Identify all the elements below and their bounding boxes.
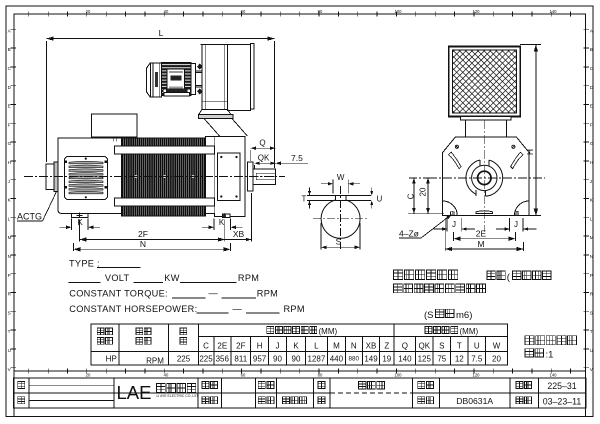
svg-text:120: 120 — [473, 373, 481, 378]
svg-text:K: K — [293, 342, 299, 351]
svg-text:2E: 2E — [476, 229, 487, 239]
svg-text:LAE: LAE — [117, 382, 152, 403]
svg-text:DB0631A: DB0631A — [456, 396, 493, 406]
svg-text:75: 75 — [437, 354, 446, 363]
svg-text:(MM): (MM) — [460, 327, 479, 336]
svg-text:60: 60 — [241, 373, 246, 378]
svg-text:140: 140 — [398, 354, 412, 363]
svg-text:7.5: 7.5 — [471, 354, 483, 363]
svg-text:J: J — [8, 179, 10, 184]
svg-text:CONSTANT HORSEPOWER:: CONSTANT HORSEPOWER: — [69, 304, 197, 314]
svg-text:90: 90 — [292, 354, 301, 363]
svg-text:M: M — [333, 342, 340, 351]
svg-text:7.5: 7.5 — [291, 153, 303, 163]
svg-text:L: L — [8, 216, 11, 221]
svg-text:P: P — [590, 273, 593, 278]
svg-text:2F: 2F — [236, 342, 245, 351]
svg-text:03–23–11: 03–23–11 — [543, 396, 582, 406]
svg-text:(MM): (MM) — [319, 327, 338, 336]
svg-text:F: F — [590, 122, 593, 127]
svg-text:G: G — [590, 141, 594, 146]
svg-text:M: M — [590, 235, 594, 240]
svg-text:ACTG: ACTG — [17, 212, 42, 222]
svg-text:G: G — [8, 141, 12, 146]
svg-text:RPM: RPM — [238, 273, 259, 283]
svg-text:356: 356 — [216, 354, 230, 363]
svg-text:W: W — [337, 173, 345, 182]
svg-text:140: 140 — [550, 9, 558, 14]
svg-text:U: U — [590, 348, 593, 353]
svg-text:40: 40 — [164, 9, 169, 14]
svg-text:20: 20 — [86, 373, 91, 378]
svg-text:N: N — [590, 254, 593, 259]
svg-text:L: L — [314, 342, 319, 351]
svg-text:Z: Z — [384, 342, 389, 351]
svg-text:—: — — [233, 303, 243, 313]
svg-text:VOLT: VOLT — [105, 273, 130, 283]
svg-text:2F: 2F — [138, 229, 148, 239]
svg-text:P: P — [8, 273, 11, 278]
svg-text:J: J — [590, 179, 592, 184]
svg-text:C: C — [203, 342, 209, 351]
svg-text:H: H — [525, 149, 535, 155]
svg-text:L: L — [590, 216, 593, 221]
svg-text:880: 880 — [349, 356, 360, 363]
svg-text:J: J — [514, 220, 518, 229]
svg-text:F: F — [8, 122, 11, 127]
svg-text:149: 149 — [364, 354, 378, 363]
svg-text:20: 20 — [86, 9, 91, 14]
svg-text:225–31: 225–31 — [547, 381, 576, 391]
svg-text:20: 20 — [419, 187, 428, 196]
svg-text:90: 90 — [273, 354, 282, 363]
svg-text:K: K — [219, 218, 225, 227]
svg-text:(S: (S — [424, 310, 434, 321]
svg-text:Q: Q — [259, 139, 265, 148]
svg-text:L: L — [159, 28, 164, 38]
svg-text:S: S — [439, 342, 444, 351]
svg-text:225: 225 — [199, 354, 213, 363]
svg-text:100: 100 — [395, 373, 403, 378]
svg-text:U: U — [8, 348, 11, 353]
svg-text:S: S — [590, 310, 593, 315]
svg-text:957: 957 — [253, 354, 267, 363]
svg-text:H: H — [257, 342, 263, 351]
svg-text:Q: Q — [402, 342, 408, 351]
svg-text:H: H — [590, 160, 593, 165]
svg-text:T: T — [8, 329, 11, 334]
svg-text:TYPE :: TYPE : — [69, 259, 100, 269]
svg-text:E: E — [8, 104, 11, 109]
svg-text:W: W — [493, 342, 501, 351]
svg-text:T: T — [590, 329, 593, 334]
svg-text:QK: QK — [258, 154, 270, 163]
svg-text:2E: 2E — [217, 342, 227, 351]
svg-text:811: 811 — [234, 354, 247, 363]
svg-text:CONSTANT TORQUE:: CONSTANT TORQUE: — [69, 289, 168, 299]
svg-text:N: N — [8, 254, 11, 259]
svg-text:C: C — [406, 193, 415, 199]
svg-text:19: 19 — [382, 354, 391, 363]
svg-text:M: M — [8, 235, 12, 240]
svg-text:1287: 1287 — [308, 354, 326, 363]
svg-text::1: :1 — [546, 350, 554, 361]
svg-text:40: 40 — [164, 373, 169, 378]
svg-text:RPM: RPM — [146, 357, 164, 366]
svg-text:100: 100 — [395, 9, 403, 14]
svg-text:HP: HP — [106, 354, 117, 363]
svg-text:XB: XB — [233, 229, 245, 239]
svg-text:S: S — [8, 310, 11, 315]
svg-text:U: U — [474, 342, 480, 351]
svg-text:B: B — [590, 47, 593, 52]
svg-text:XB: XB — [366, 342, 377, 351]
svg-text:H: H — [8, 160, 11, 165]
svg-text:m6): m6) — [456, 310, 472, 321]
svg-text:T: T — [457, 342, 462, 351]
svg-text:60: 60 — [241, 9, 246, 14]
svg-text:140: 140 — [550, 373, 558, 378]
svg-text:440: 440 — [330, 354, 344, 363]
svg-text:RPM: RPM — [284, 304, 305, 314]
svg-text:80: 80 — [318, 373, 323, 378]
svg-text:LI AYE ELECTRIC CO.,LST: LI AYE ELECTRIC CO.,LST — [157, 394, 199, 398]
svg-text:20: 20 — [492, 354, 501, 363]
svg-text:N: N — [140, 239, 146, 249]
svg-text:T: T — [302, 194, 307, 203]
svg-text:RPM: RPM — [257, 289, 278, 299]
svg-text:120: 120 — [473, 9, 481, 14]
svg-text:—: — — [209, 288, 219, 298]
svg-text:M: M — [477, 239, 484, 249]
svg-text:J: J — [452, 220, 456, 229]
svg-text:12: 12 — [455, 354, 464, 363]
svg-text:B: B — [8, 47, 11, 52]
svg-text:K: K — [77, 218, 83, 227]
svg-text:E: E — [590, 104, 593, 109]
svg-text:J: J — [276, 342, 280, 351]
svg-text:225: 225 — [177, 354, 191, 363]
svg-text:KW: KW — [164, 273, 179, 283]
svg-text:80: 80 — [318, 9, 323, 14]
svg-text:S: S — [336, 237, 342, 247]
svg-text:QK: QK — [419, 342, 431, 351]
svg-text:U: U — [377, 195, 383, 204]
svg-text:4–Zø: 4–Zø — [399, 228, 419, 238]
svg-text:N: N — [351, 342, 357, 351]
svg-text:125: 125 — [418, 354, 432, 363]
